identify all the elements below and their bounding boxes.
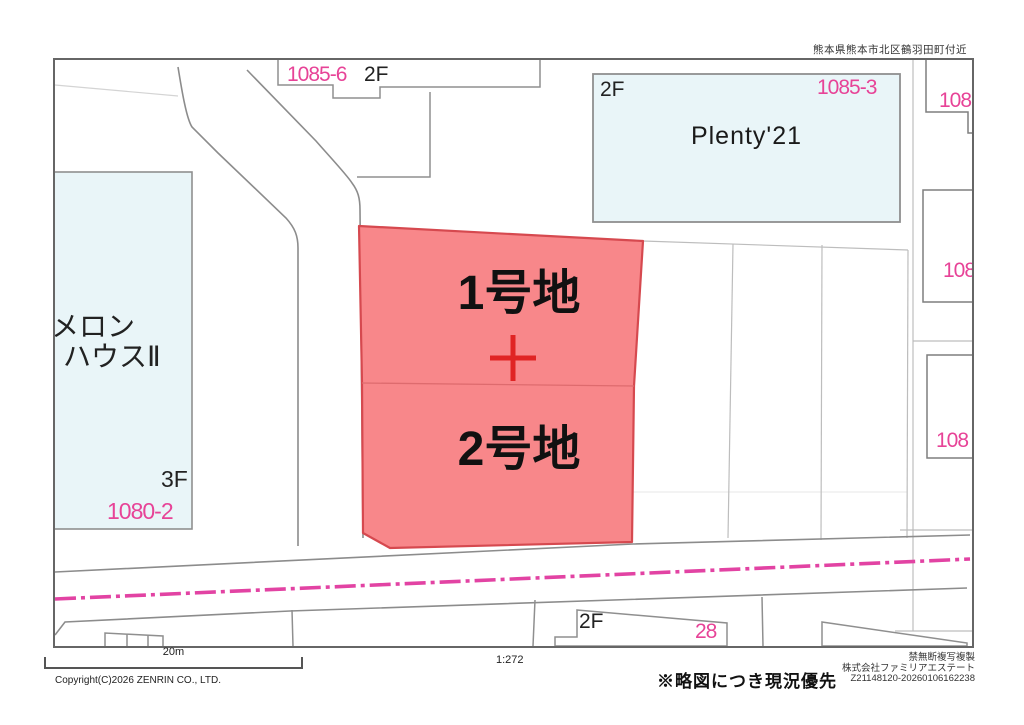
parcel-number-108-bottom: 108 bbox=[936, 430, 968, 451]
parcel-number-1080-2: 1080-2 bbox=[107, 500, 173, 523]
building-name-plenty21: Plenty'21 bbox=[593, 122, 900, 151]
parcel-number-28: 28 bbox=[695, 621, 716, 642]
map-location-title: 熊本県熊本市北区鶴羽田町付近 bbox=[813, 42, 967, 57]
map-canvas: 1085-6 2F 2F 1085-3 Plenty'21 メロン ハウスⅡ 3… bbox=[53, 58, 974, 648]
lot1-label: 1号地 bbox=[385, 270, 653, 318]
building-name-melon-line2: ハウスⅡ bbox=[63, 343, 161, 371]
zenrin-copyright: Copyright(C)2026 ZENRIN CO., LTD. bbox=[55, 675, 221, 686]
scale-ratio: 1:272 bbox=[496, 654, 524, 666]
building-name-melon-line1: メロン bbox=[53, 313, 135, 341]
parcel-number-1085-6: 1085-6 bbox=[287, 64, 346, 85]
floor-label-bottom-2f: 2F bbox=[579, 611, 604, 632]
scale-bar bbox=[44, 657, 303, 669]
lower-buildings bbox=[105, 597, 967, 646]
survey-cross-icon bbox=[485, 330, 541, 386]
floor-label-plenty-2f: 2F bbox=[600, 79, 625, 100]
lot2-label: 2号地 bbox=[385, 426, 653, 474]
zenrin-map-page: 熊本県熊本市北区鶴羽田町付近 bbox=[0, 0, 1024, 725]
parcel-number-108-mid: 108 bbox=[943, 260, 974, 281]
document-serial: Z21148120-20260106162238 bbox=[842, 674, 975, 685]
sketch-notice: ※略図につき現況優先 bbox=[657, 667, 837, 692]
publisher-credits: 禁無断複写複製 株式会社ファミリアエステート Z21148120-2026010… bbox=[842, 653, 975, 685]
parcel-number-108-top: 108 bbox=[939, 90, 971, 111]
floor-label-top-2f: 2F bbox=[364, 64, 389, 85]
floor-label-3f: 3F bbox=[161, 468, 188, 491]
parcel-number-1085-3: 1085-3 bbox=[817, 77, 876, 98]
